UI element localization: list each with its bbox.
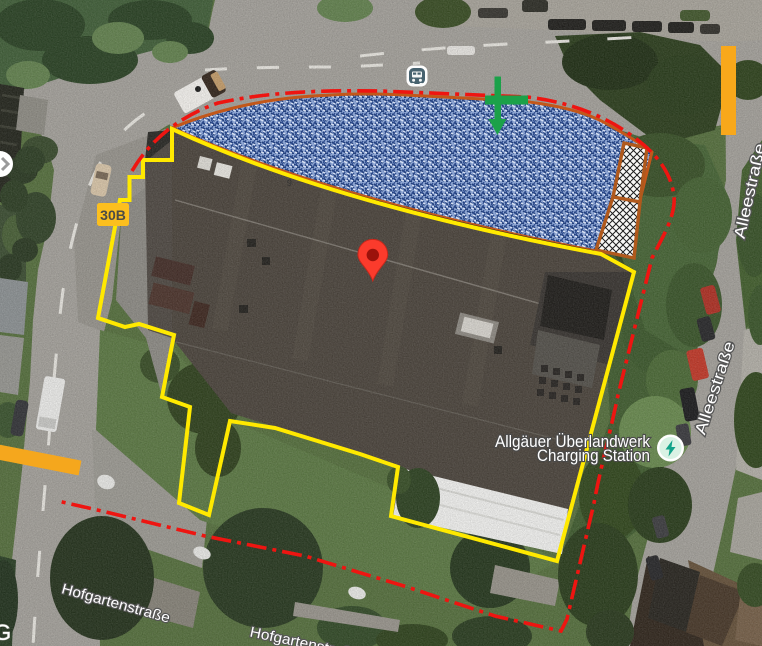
svg-text:Charging Station: Charging Station — [537, 447, 650, 465]
svg-text:G: G — [0, 620, 11, 645]
svg-text:30B: 30B — [100, 207, 126, 223]
